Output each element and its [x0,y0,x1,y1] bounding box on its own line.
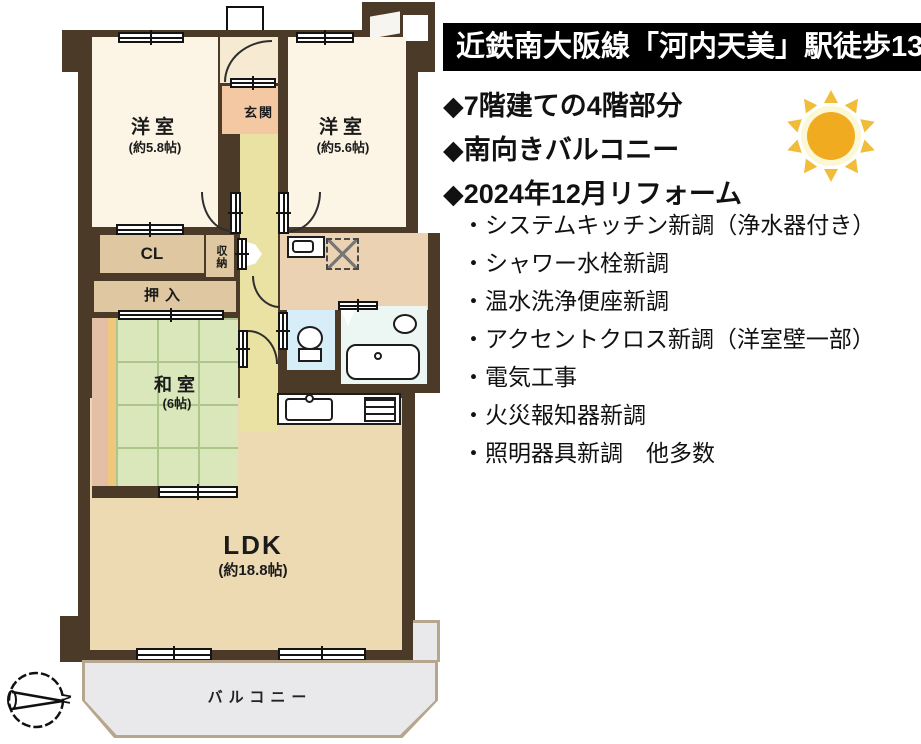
room-label-oshiire: 押入 [94,281,236,312]
room-label-balcony: バルコニー [140,686,380,710]
room-label-cl: CL [100,235,204,273]
bath-sink-oval-icon [393,314,417,334]
door-bar [278,192,289,234]
compass-icon: N [4,662,76,738]
window-marker [136,648,212,661]
room-label-yoshitsu2: 洋室 (約5.6帖) [284,108,402,164]
renovation-list: ・システムキッチン新調（浄水器付き） ・シャワー水栓新調 ・温水洗浄便座新調 ・… [462,206,921,472]
room-size: (約5.8帖) [129,140,182,156]
toilet-bowl-icon [297,326,323,350]
room-size: (約5.6帖) [317,140,370,156]
toilet-tank-icon [298,348,322,362]
bath-knob-icon [374,352,382,360]
renovation-item: ・火災報知器新調 [462,396,921,434]
room-size: (6帖) [163,396,192,412]
bathtub-icon [346,344,420,380]
washitsu-border-strip [108,318,116,488]
station-access-header: 近鉄南大阪線「河内天美」駅徒歩13分 [443,23,921,71]
window-marker [118,32,184,43]
room-size: (約18.8帖) [218,562,287,581]
room-label-washitsu: 和室 (6帖) [116,366,238,420]
compass-north-label: N [57,692,75,705]
renovation-item: ・アクセントクロス新調（洋室壁一部） [462,320,921,358]
door-bar [278,312,288,350]
window-marker [278,648,366,661]
faucet-icon [305,394,314,403]
room-name: LDK [223,529,282,562]
top-right-white-box [403,15,428,41]
room-name: 和室 [154,374,200,397]
feature-item: ◆南向きバルコニー [443,128,803,172]
feature-list: ◆7階建ての4階部分 ◆南向きバルコニー ◆2024年12月リフォーム [443,84,803,216]
room-name: 洋室 [131,116,179,140]
washitsu-engawa [92,318,108,488]
window-marker [116,224,184,235]
door-bar [237,238,247,270]
balcony-right-notch [413,620,440,662]
room-label-genkan: 玄関 [238,104,280,122]
renovation-item: ・照明器具新調 他多数 [462,434,921,472]
renovation-item: ・システムキッチン新調（浄水器付き） [462,206,921,244]
washing-machine-icon [326,238,359,270]
renovation-item: ・温水洗浄便座新調 [462,282,921,320]
room-name: 洋室 [319,116,367,140]
room-label-shuno: 収納 [208,237,232,277]
floor-plan: 洋室 (約5.8帖) 洋室 (約5.6帖) 玄関 CL 収納 押入 和室 (6帖… [0,0,460,744]
window-marker [296,32,354,43]
window-marker [158,486,238,498]
room-label-yoshitsu1: 洋室 (約5.8帖) [92,108,218,164]
door-bar [338,301,378,310]
renovation-item: ・電気工事 [462,358,921,396]
feature-item: ◆7階建ての4階部分 [443,84,803,128]
page: { "panel": { "header": "近鉄南大阪線「河内天美」駅徒歩1… [0,0,921,744]
room-label-ldk: LDK (約18.8帖) [173,526,333,584]
washbasin-bowl-icon [292,240,314,253]
door-bar [238,330,248,368]
renovation-item: ・シャワー水栓新調 [462,244,921,282]
sun-icon [781,86,881,186]
stove-icon [364,397,396,422]
